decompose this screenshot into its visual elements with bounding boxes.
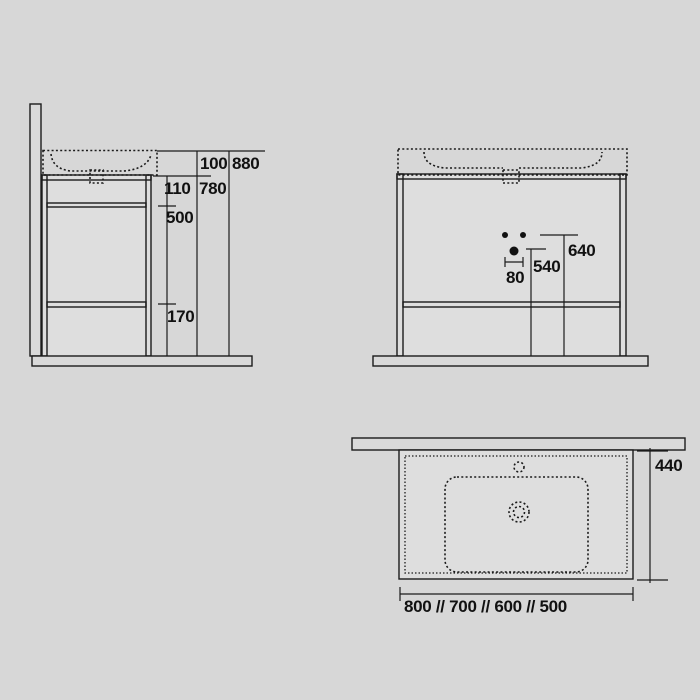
- washbasin-front-bowl-right: [519, 152, 602, 168]
- dim-label-tap-height: 640: [568, 241, 595, 260]
- dim-label-width-options: 800 // 700 // 600 // 500: [404, 597, 567, 616]
- washbasin-side-bowl: [51, 154, 151, 171]
- front-base-plate: [373, 356, 648, 366]
- tap-hole-right-dot: [520, 232, 526, 238]
- side-base-plate: [32, 356, 252, 366]
- dim-label-drain-height: 540: [533, 257, 560, 276]
- dim-label-frame-height: 780: [199, 179, 226, 198]
- washbasin-front-bowl-left: [424, 152, 503, 168]
- counter-interior: [399, 450, 633, 579]
- dim-label-top-section: 110: [164, 179, 191, 198]
- front-frame-interior: [397, 174, 626, 356]
- dim-label-basin-height: 100: [200, 154, 227, 173]
- drain-dot: [510, 247, 519, 256]
- dim-label-mid-section: 500: [166, 208, 193, 227]
- side-view: 100 880 110 780 500 170: [30, 104, 265, 366]
- dim-label-tap-spacing: 80: [506, 268, 524, 287]
- wall-top-view: [352, 438, 685, 450]
- dim-label-bottom-section: 170: [167, 307, 194, 326]
- wall: [30, 104, 41, 356]
- dim-label-depth: 440: [655, 456, 682, 475]
- front-view: 640 540 80: [373, 149, 648, 366]
- top-view: 440 800 // 700 // 600 // 500: [352, 438, 685, 616]
- technical-drawing: 100 880 110 780 500 170 640 540: [0, 0, 700, 700]
- tap-hole-left-dot: [502, 232, 508, 238]
- dim-label-total-height: 880: [232, 154, 259, 173]
- side-frame-interior: [42, 175, 151, 356]
- washbasin-front-outline: [398, 149, 627, 175]
- drawing-svg: 100 880 110 780 500 170 640 540: [0, 0, 700, 700]
